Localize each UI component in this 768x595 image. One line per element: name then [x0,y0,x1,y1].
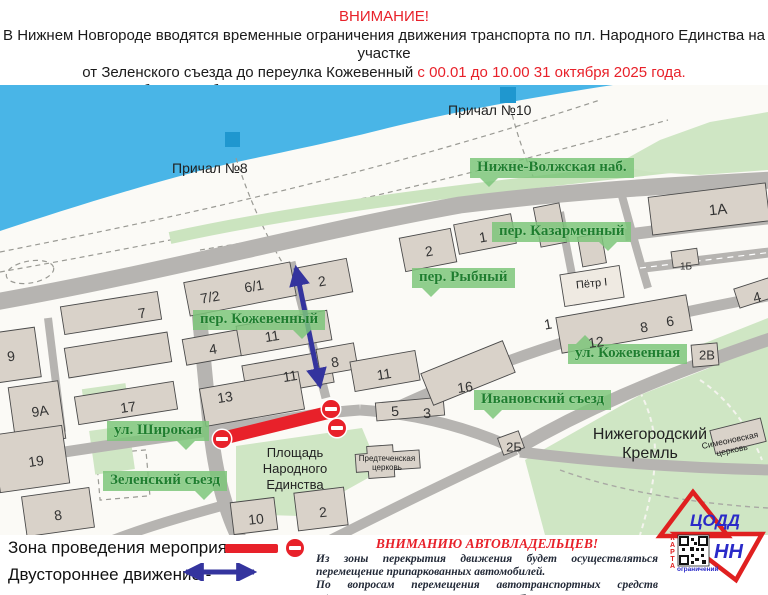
street-label: Нижне-Волжская наб. [470,158,634,178]
building-number: 12 [587,333,605,351]
header: ВНИМАНИЕ! В Нижнем Новгороде вводятся вр… [0,0,768,85]
tsodd-logo: ЦОДД НН КАРТА ограничений [636,478,768,595]
building-number: 11 [264,327,281,345]
building-number: 11 [376,365,393,383]
qr-side-caption: КАРТА [669,535,676,570]
building-number: 11 [282,367,299,385]
legend-zone-swatch [225,544,278,553]
header-line3-red: с 00.01 до 10.00 31 октября 2025 года. [413,64,685,81]
building-number: 7/2 [199,287,221,306]
legend-twoway-arrow [176,563,266,581]
building-number: 2 [318,504,327,521]
street-label: ул. Кожевенная [568,344,687,364]
street-label: Зеленский съезд [103,471,227,491]
tsodd-logo-triangles: ЦОДД НН [636,478,768,595]
square-label: Площадь Народного Единства [240,445,350,493]
building-number: 6/1 [243,276,265,295]
street-label: ул. Широкая [107,421,209,441]
street-label: пер. Рыбный [412,268,515,288]
building-number: 2Б [506,440,522,455]
header-attention: ВНИМАНИЕ! [0,8,768,27]
street-label: пер. Казарменный [492,222,631,242]
qr-code [678,535,709,566]
building-number: 3 [423,405,432,422]
building-number: 19 [27,452,45,470]
building-number: 10 [247,510,264,528]
header-line3-black: от Зеленского съезда до переулка Кожевен… [82,64,413,81]
legend-no-entry-icon [286,539,304,557]
no-entry-sign [328,419,346,437]
pier-10-label: Причал №10 [448,102,531,118]
street-label: Ивановский съезд [474,390,611,410]
header-line3: от Зеленского съезда до переулка Кожевен… [0,64,768,83]
logo-bottom-text: НН [714,541,743,563]
building-number: 2В [699,348,715,363]
logo-top-text: ЦОДД [690,511,740,530]
traffic-restriction-poster: ВНИМАНИЕ! В Нижнем Новгороде вводятся вр… [0,0,768,595]
notice-paragraph-2: По вопросам перемещения автотранспортных… [316,579,658,595]
qr-bottom-caption: ограничений [677,566,719,573]
building-number: 5 [391,403,400,420]
pier-8-marker [225,132,240,147]
header-line2: В Нижнем Новгороде вводятся временные ог… [0,27,768,64]
building-number: 1Б [680,262,692,273]
car-owners-notice: ВНИМАНИЮ АВТОВЛАДЕЛЬЦЕВ! Из зоны перекры… [316,536,658,595]
notice-p2-text: По вопросам перемещения автотранспортных… [316,579,658,595]
no-entry-sign [213,430,231,448]
building-number: 9А [30,402,49,420]
building-number: 17 [119,398,137,416]
pier-8-label: Причал №8 [172,160,248,176]
city-map: Причал №8 Причал №10 Площадь Народного Е… [0,85,768,535]
no-entry-sign [322,400,340,418]
pier-10-marker [500,87,516,103]
building-number: 16 [456,378,474,396]
building-number: 1А [708,201,728,220]
notice-paragraph-1: Из зоны перекрытия движения будет осущес… [316,553,658,579]
street-label: пер. Кожевенный [193,310,325,330]
notice-title: ВНИМАНИЮ АВТОВЛАДЕЛЬЦЕВ! [316,536,658,552]
church-1-label: Предтеченская церковь [352,454,422,472]
building-number: 13 [216,388,234,406]
